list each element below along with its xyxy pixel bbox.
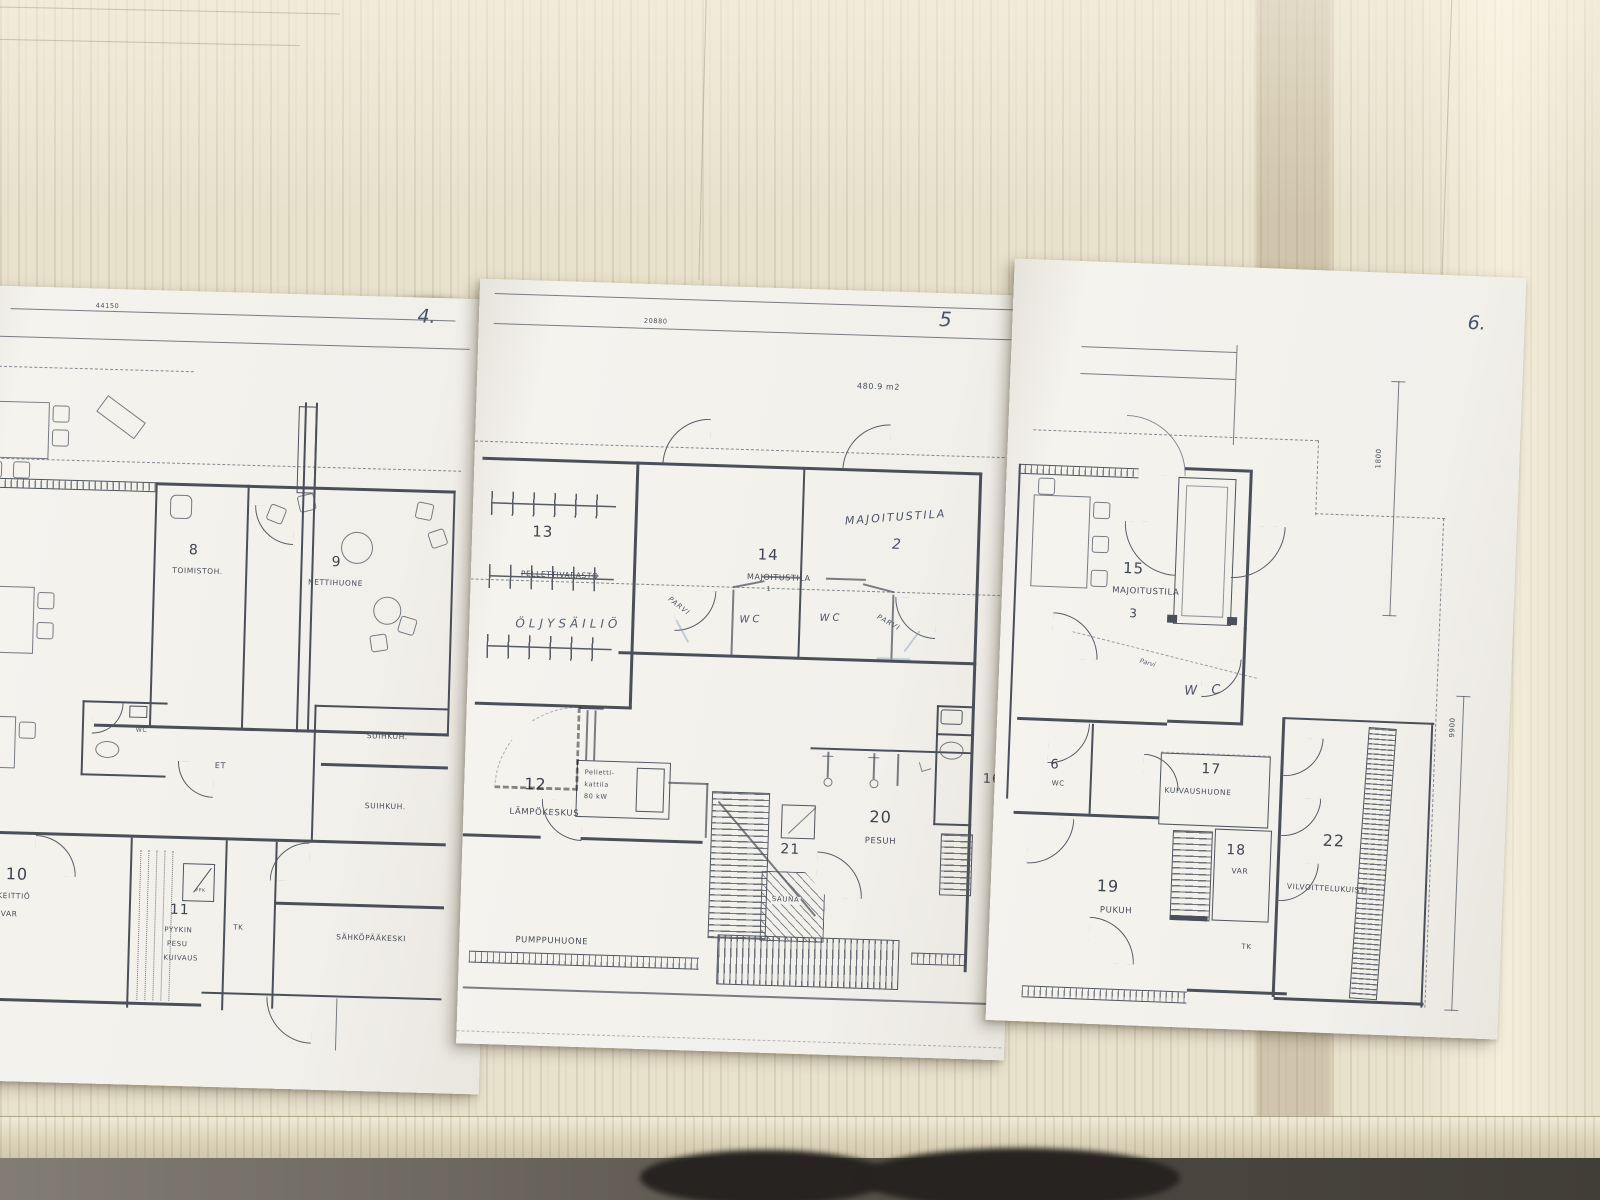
deck-hatch xyxy=(716,934,899,990)
room-label: SUIHKUH. xyxy=(365,802,406,811)
floorplan-page-4: 44150 4. 8 TOIMISTOH. 9 NETTIHUONE xyxy=(0,285,501,1095)
door-leaf xyxy=(335,998,338,1050)
floor-drain xyxy=(919,760,931,772)
dimension-label: 20880 xyxy=(644,318,668,326)
room-number: 18 xyxy=(1226,843,1246,858)
handwritten-room-name: MAJOITUSTILA xyxy=(845,508,947,526)
chair xyxy=(1038,478,1056,496)
dimension-tick xyxy=(1444,1009,1458,1011)
door-arc xyxy=(265,996,312,1043)
wall xyxy=(447,491,456,736)
door-foot xyxy=(1167,615,1177,623)
room-label: WC xyxy=(136,728,148,735)
wall xyxy=(933,823,971,826)
stairs-base xyxy=(1170,915,1208,921)
table xyxy=(373,596,402,625)
boiler-inner xyxy=(635,768,664,813)
shower-head xyxy=(823,778,832,787)
room-label: NETTIHUONE xyxy=(308,578,363,588)
table xyxy=(0,400,50,460)
dimension-tick xyxy=(1456,696,1470,698)
room-number: 19 xyxy=(1096,878,1119,895)
chair xyxy=(52,405,69,422)
area-label: 480.9 m2 xyxy=(857,382,900,392)
room-label: WC xyxy=(1052,780,1065,788)
handwritten-wc: W C xyxy=(1184,683,1225,697)
boiler-label: Pelletti- xyxy=(585,769,615,777)
sink xyxy=(940,709,962,725)
room-label: PYYKIN xyxy=(164,927,192,935)
shower-head xyxy=(869,779,878,788)
closet-inner xyxy=(1181,485,1228,618)
wall xyxy=(221,840,228,1010)
door-arc xyxy=(1281,797,1321,837)
chair xyxy=(427,528,448,549)
chimney-cap xyxy=(580,706,604,710)
chair xyxy=(0,460,2,477)
dimension-label: 1800 xyxy=(1375,448,1383,468)
room-number: 15 xyxy=(1123,561,1145,577)
room-number: 10 xyxy=(6,866,29,883)
window-wall xyxy=(911,952,965,966)
room-label: SAUNA xyxy=(771,896,801,905)
wall xyxy=(482,457,982,476)
table-seam xyxy=(0,39,300,46)
wall xyxy=(475,702,632,710)
door-arc xyxy=(177,761,214,798)
wall xyxy=(629,462,640,710)
table-seam xyxy=(1441,0,1452,300)
room-label: KEITTIÖ xyxy=(0,892,30,901)
page-number-handwritten: 5 xyxy=(939,309,952,329)
room-label: PUKUH xyxy=(1100,906,1133,917)
door-arc xyxy=(894,597,936,639)
chair xyxy=(1092,536,1110,554)
wall xyxy=(149,482,158,727)
handwritten-wc: WC xyxy=(820,614,843,624)
floorplan-page-6: 6. 1800 15 MAJOITUSTILA 3 P xyxy=(986,258,1527,1039)
wall xyxy=(0,996,201,1006)
room-label: SUIHKUH. xyxy=(367,732,408,741)
door-arc xyxy=(92,703,124,735)
table xyxy=(1030,494,1090,588)
border-line xyxy=(495,293,1015,310)
chair xyxy=(397,615,418,636)
door-arc xyxy=(1088,917,1136,965)
ppk-label: PPK xyxy=(195,889,205,894)
door-arc xyxy=(1283,737,1323,777)
chair xyxy=(13,461,30,478)
dash-line xyxy=(1315,440,1319,515)
wall xyxy=(730,590,734,656)
room-label: PUMPPUHUONE xyxy=(515,936,588,948)
stairs xyxy=(939,833,973,896)
wall xyxy=(311,705,317,843)
pipe xyxy=(668,782,708,785)
shower-tick xyxy=(868,757,879,759)
hatched-wall xyxy=(1349,727,1397,1000)
blue-pencil-mark xyxy=(903,630,920,652)
wall xyxy=(1089,724,1094,814)
room-number: 8 xyxy=(189,543,199,557)
wall xyxy=(463,833,541,838)
room-number: 6 xyxy=(1050,758,1060,771)
wall xyxy=(937,705,975,708)
chair xyxy=(369,633,388,652)
shower xyxy=(896,754,899,786)
wall xyxy=(1185,467,1250,472)
window-wall xyxy=(1021,985,1186,1003)
chimney xyxy=(585,710,589,760)
boiler-label: 80 kW xyxy=(584,793,608,801)
dimension-line xyxy=(1080,373,1235,380)
wall xyxy=(933,705,939,825)
door-arc xyxy=(541,799,583,841)
dimension-line xyxy=(494,323,1014,340)
wall xyxy=(0,829,446,846)
room-label: TOIMISTOH. xyxy=(172,567,223,577)
pipe xyxy=(705,783,708,838)
room-label: MAJOITUSTILA xyxy=(1112,586,1180,598)
feet-shadow xyxy=(640,1150,890,1200)
photo-of-floorplans: 44150 4. 8 TOIMISTOH. 9 NETTIHUONE xyxy=(0,0,1600,1200)
table-seam xyxy=(0,6,340,14)
shelf-rack xyxy=(491,491,617,519)
window-wall xyxy=(1019,464,1139,479)
dash-line xyxy=(1033,429,1318,441)
boiler-label: kattila xyxy=(584,781,609,789)
wall xyxy=(202,992,442,1001)
dash-line xyxy=(456,1030,1001,1048)
table xyxy=(341,531,374,564)
wall xyxy=(826,578,866,581)
hatch-dots xyxy=(152,850,157,1000)
dimension-line xyxy=(1233,345,1238,445)
dimension-label: 44150 xyxy=(96,302,120,310)
door-arc xyxy=(816,851,863,898)
room-label: TK xyxy=(1241,944,1251,952)
dimension-line xyxy=(1451,696,1464,1011)
floorplan-page-5: 20880 5 480.9 m2 13 PELLETTIVARASTO ÖLJY… xyxy=(456,279,1028,1061)
dash-line xyxy=(1315,513,1445,519)
door-arc xyxy=(662,417,710,465)
chair xyxy=(1093,502,1111,520)
table xyxy=(0,584,35,653)
room-label: SÄHKÖPÄÄKESKI xyxy=(336,933,406,943)
wall xyxy=(797,469,805,659)
door-arc xyxy=(1027,817,1075,865)
door-arc xyxy=(1231,525,1286,580)
shelf xyxy=(297,406,317,493)
dimension-line xyxy=(1081,346,1236,353)
wall xyxy=(1006,464,1021,799)
shower-tick xyxy=(822,756,833,758)
chair xyxy=(1090,570,1108,588)
dash-line xyxy=(1424,518,1444,1008)
door-arc xyxy=(842,423,890,471)
chair xyxy=(36,622,53,639)
ramp xyxy=(96,395,146,439)
handwritten-parvi: PARVI xyxy=(875,614,901,633)
chair xyxy=(170,495,193,520)
room-number: 22 xyxy=(1322,833,1345,850)
dash-line xyxy=(0,458,461,472)
room-number: 13 xyxy=(532,524,554,540)
door-arc xyxy=(35,835,77,877)
room-sub-number: 3 xyxy=(1129,607,1138,619)
hatch-dots xyxy=(144,850,149,1000)
wall xyxy=(1284,717,1434,725)
chair xyxy=(37,592,54,609)
hatch-dots xyxy=(136,850,141,1000)
chair xyxy=(415,501,435,521)
page-number-handwritten: 4. xyxy=(417,307,436,326)
handwritten-room-sub: 2 xyxy=(892,538,901,552)
dash-line xyxy=(475,441,1020,459)
room-label: VAR xyxy=(1,910,18,919)
room-number: 17 xyxy=(1201,762,1221,777)
handwritten-parvi: Parvi xyxy=(1139,658,1156,669)
room-label: PESUH xyxy=(865,837,897,847)
room-label: KUIVAUS xyxy=(163,955,198,964)
shelf-rack xyxy=(486,634,612,662)
handwritten-label: ÖLJYSÄILIÖ xyxy=(515,617,621,630)
handwritten-wc: WC xyxy=(739,615,762,625)
wall xyxy=(936,733,974,736)
table xyxy=(0,714,16,768)
pencil-door-arc xyxy=(1125,415,1188,476)
wall xyxy=(126,838,133,1008)
dashed-arc xyxy=(494,704,581,791)
dimension-line xyxy=(1389,381,1399,616)
toilet xyxy=(95,741,119,759)
chimney xyxy=(593,710,597,760)
wall xyxy=(581,837,703,844)
table-seam xyxy=(698,0,706,280)
door-foot xyxy=(1227,617,1237,625)
dimension-tick xyxy=(1382,615,1396,617)
wall xyxy=(81,700,85,775)
ground-line xyxy=(463,986,998,1004)
window-wall xyxy=(0,476,156,492)
wall xyxy=(241,485,250,730)
chair xyxy=(52,429,69,446)
wall xyxy=(274,902,444,910)
room-number: 11 xyxy=(170,903,190,918)
boundary-line xyxy=(0,335,470,350)
dash-line xyxy=(0,366,194,373)
room-number: 9 xyxy=(331,555,341,569)
wall xyxy=(1167,720,1243,726)
dimension-tick xyxy=(1391,381,1405,383)
room-label: ET xyxy=(215,762,226,771)
wall xyxy=(315,705,450,711)
room-number: 20 xyxy=(869,809,892,826)
room-number: 21 xyxy=(780,842,800,857)
chair xyxy=(19,721,36,738)
window-wall xyxy=(469,951,699,970)
room-number: 14 xyxy=(757,547,779,563)
stairs xyxy=(1170,830,1213,921)
sink xyxy=(129,706,147,718)
dimension-label: 9900 xyxy=(1449,717,1457,737)
dimension-line xyxy=(11,308,456,321)
room-label: PESU xyxy=(167,941,188,949)
page-number-handwritten: 6. xyxy=(1467,314,1486,334)
toilet xyxy=(939,741,964,760)
room-label: VAR xyxy=(1231,867,1248,876)
wall xyxy=(81,773,166,777)
room-label: TK xyxy=(233,925,243,933)
wall xyxy=(321,763,448,770)
feet-shadow xyxy=(860,1148,1180,1200)
wall xyxy=(964,472,983,972)
